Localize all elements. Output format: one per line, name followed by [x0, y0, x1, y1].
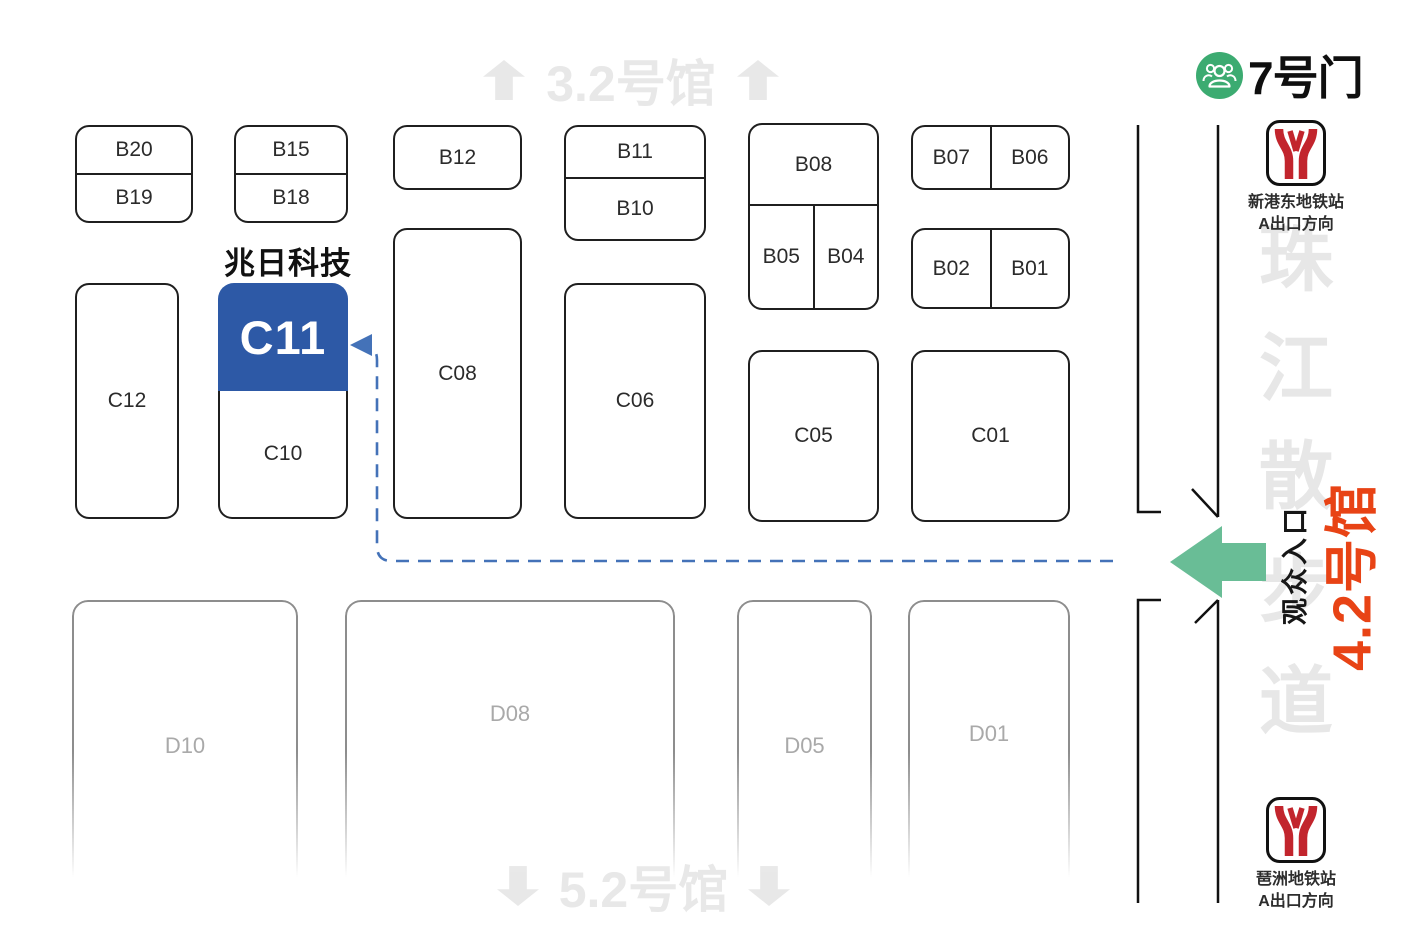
crowd-icon — [1196, 52, 1243, 99]
booth-b18: B18 — [236, 173, 346, 221]
booth-d05-label: D05 — [739, 733, 870, 759]
entrance-arrow-icon — [1170, 526, 1266, 598]
booth-b07-b06: B07 B06 — [911, 125, 1070, 190]
metro-exit-direction: A出口方向 — [1256, 891, 1336, 913]
booth-b02: B02 — [913, 230, 990, 307]
booth-b19: B19 — [77, 173, 191, 221]
booth-b06: B06 — [990, 127, 1069, 188]
road-lines — [1138, 125, 1218, 903]
booth-c06: C06 — [564, 283, 706, 519]
booth-b12: B12 — [393, 125, 522, 190]
hall-top-text: 3.2号馆 — [546, 44, 716, 116]
metro-station-name: 新港东地铁站 — [1248, 192, 1344, 214]
booth-b15-b18: B15 B18 — [234, 125, 348, 223]
booth-c05: C05 — [748, 350, 879, 522]
metro-station-name: 琶洲地铁站 — [1256, 869, 1336, 891]
booth-b05: B05 — [750, 206, 813, 308]
booth-d08-label: D08 — [347, 701, 673, 727]
booth-d05: D05 — [737, 600, 872, 892]
booth-b08: B08 — [750, 125, 877, 204]
metro-station-pazhou: 琶洲地铁站 A出口方向 — [1226, 797, 1366, 913]
walkway-char: 江 — [1256, 332, 1336, 406]
booth-d10: D10 — [72, 600, 298, 892]
booth-b10: B10 — [566, 177, 704, 239]
metro-station-text: 新港东地铁站 A出口方向 — [1248, 192, 1344, 236]
hall-right-label: 4.2号馆 — [1308, 483, 1387, 671]
booth-b04: B04 — [813, 206, 878, 308]
metro-logo-icon — [1266, 797, 1326, 863]
exhibition-floor-map: 珠 江 散 步 道 3.2号馆 5.2号馆 7号门 — [0, 0, 1420, 931]
booth-b05-b04-row: B05 B04 — [750, 204, 877, 308]
booth-c11-c10: C11 C10 — [218, 283, 348, 519]
walkway-char: 道 — [1256, 665, 1336, 739]
booth-c11-highlighted: C11 — [218, 283, 348, 391]
booth-b01: B01 — [990, 230, 1069, 307]
booth-c08: C08 — [393, 228, 522, 519]
booth-b15: B15 — [236, 127, 346, 173]
booth-b20-b19: B20 B19 — [75, 125, 193, 223]
company-name-label: 兆日科技 — [210, 238, 366, 283]
metro-station-xingangdong: 新港东地铁站 A出口方向 — [1226, 120, 1366, 236]
booth-d08: D08 — [345, 600, 675, 892]
route-arrowhead-icon — [350, 334, 372, 356]
booth-d10-label: D10 — [74, 733, 296, 759]
booth-d01: D01 — [908, 600, 1070, 892]
hall-top-label: 3.2号馆 — [483, 44, 779, 116]
booth-d01-label: D01 — [910, 721, 1068, 747]
metro-exit-direction: A出口方向 — [1248, 214, 1344, 236]
booth-c10: C10 — [218, 391, 348, 519]
booth-b11-b10: B11 B10 — [564, 125, 706, 241]
booth-c12: C12 — [75, 283, 179, 519]
booth-b11: B11 — [566, 127, 704, 177]
gate-7: 7号门 — [1196, 42, 1363, 108]
booth-b07: B07 — [913, 127, 990, 188]
booth-b02-b01: B02 B01 — [911, 228, 1070, 309]
up-arrow-icon — [737, 60, 779, 100]
booth-c01: C01 — [911, 350, 1070, 522]
booth-b08-b05-b04: B08 B05 B04 — [748, 123, 879, 310]
gate-label: 7号门 — [1248, 42, 1363, 108]
metro-logo-icon — [1266, 120, 1326, 186]
up-arrow-icon — [483, 60, 525, 100]
metro-station-text: 琶洲地铁站 A出口方向 — [1256, 869, 1336, 913]
booth-b20: B20 — [77, 127, 191, 173]
